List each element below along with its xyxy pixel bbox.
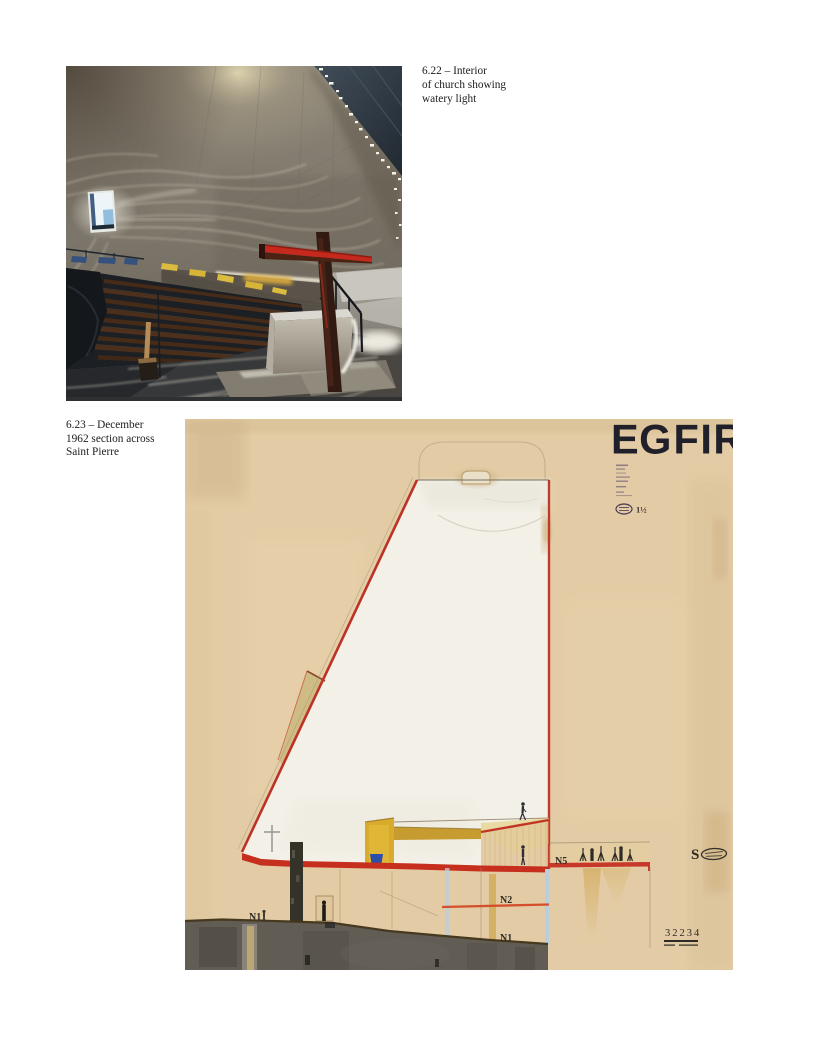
svg-text:1½: 1½ bbox=[636, 505, 647, 515]
svg-text:N5: N5 bbox=[555, 856, 567, 867]
svg-text:EG: EG bbox=[611, 419, 672, 463]
svg-text:N2: N2 bbox=[500, 895, 512, 906]
svg-text:32234: 32234 bbox=[665, 928, 701, 939]
svg-text:S: S bbox=[691, 847, 699, 863]
svg-text:N1: N1 bbox=[500, 933, 512, 944]
svg-text:N1: N1 bbox=[249, 912, 261, 923]
svg-text:FIR: FIR bbox=[674, 419, 734, 463]
